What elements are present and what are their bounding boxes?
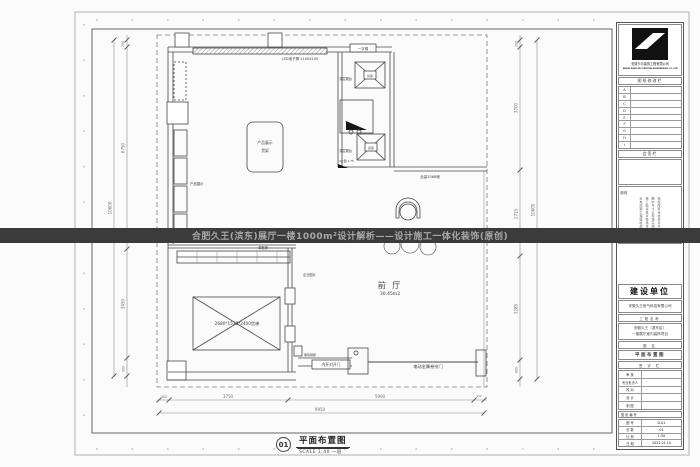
dim-left-1: 6750 <box>121 142 126 153</box>
drawing-title-marker: 01 平面布置图 SCALE 1:40 一层 <box>276 434 350 455</box>
island-label-2: 货架 <box>261 148 269 153</box>
revision-header: 图纸修改栏 <box>618 77 682 85</box>
revision-row-letter: H <box>619 135 631 141</box>
stand-label-1: 双层展台 <box>339 76 352 81</box>
revision-row-empty <box>631 101 681 107</box>
col-label-2: 货架 <box>368 145 374 150</box>
meta-label: 图 号 <box>619 420 642 426</box>
dim-right-2: 2715 <box>514 208 519 219</box>
dim-bottom-2: 5900 <box>375 394 386 399</box>
shelf-label: 产品展示 <box>190 181 204 186</box>
dim-bottom-3: 150 <box>476 394 482 398</box>
cad-floorplan-sheet: { "watermark": { "text": "合肥久王(滨东)展厅一楼10… <box>0 0 700 467</box>
plan-labels: LED电子屏 1100X100 一字梯 产品展示 产品展示 货架 双层展台 双层… <box>190 46 443 370</box>
room-area-label: 30.45m2 <box>380 291 400 297</box>
sign-row-empty <box>642 379 681 386</box>
dimension-labels: 200 6750 3450 300 10600 200 3700 2715 32… <box>108 41 536 412</box>
revision-row-letter: B <box>619 94 631 100</box>
revision-row-empty <box>631 94 681 100</box>
revision-row-letter: D <box>619 108 631 114</box>
sheet-meta-table: 图 号D-01 页 数01 比 例1:50 日 期2022.01.10 <box>618 419 682 447</box>
dim-right-0: 200 <box>515 41 519 47</box>
sign-row-empty <box>642 402 681 409</box>
led-label: LED电子屏 1100X100 <box>282 56 318 61</box>
drawing-scale: SCALE 1:40 一层 <box>296 448 350 455</box>
watermark-band: 合肥久王(滨东)展厅一楼1000m²设计解析——设计施工一体化装饰(原创) <box>0 228 700 243</box>
sign-row-label: 设 计 <box>619 394 642 401</box>
drawing-name-label: 图 名 <box>618 341 682 349</box>
revision-table: A B C D E F G H I <box>618 86 682 149</box>
revision-row-empty <box>631 108 681 114</box>
col-label-1: 货架 <box>367 73 373 78</box>
notes-header: 说明 <box>620 191 627 196</box>
sign-empty-box <box>618 159 682 185</box>
revision-row-letter: F <box>619 121 631 127</box>
dim-bottom-total: 9950 <box>315 407 326 412</box>
revision-row-empty <box>631 142 681 148</box>
dim-right-1: 3700 <box>514 102 519 113</box>
boundary-dashed <box>157 35 487 387</box>
top-door-label: 一字梯 <box>358 46 369 51</box>
sign-row-empty <box>642 371 681 378</box>
meta-label: 日 期 <box>619 440 642 446</box>
drawing-title: 平面布置图 <box>296 434 350 448</box>
dim-right-4: 600 <box>515 367 519 373</box>
column <box>175 33 189 47</box>
rolldoor-label: 电动金属卷帘门 <box>413 363 442 370</box>
client-name: 安徽久王电气科技有限公司 <box>618 300 682 313</box>
project-name: 安徽久王（滨东区） 一楼展厅室内装饰项目 <box>618 323 682 340</box>
project-label: 工程名称 <box>618 314 682 322</box>
sign-header: 会签栏 <box>618 150 682 158</box>
revision-row-empty <box>631 115 681 121</box>
revision-row-letter: C <box>619 101 631 107</box>
glass-label: 玻璃隔断 <box>304 352 316 357</box>
signature-column-header: 签 字 栏 <box>618 361 682 369</box>
sheet-number-header: 图纸编号 <box>618 411 682 418</box>
plan-geometry <box>157 33 487 387</box>
signature-table: 审 核 专业负责人 校 对 设 计 制 图 <box>618 370 682 410</box>
company-logo-icon <box>632 28 668 60</box>
revision-row-letter: I <box>619 142 631 148</box>
dim-left-0: 200 <box>121 41 125 47</box>
sign-row-label: 校 对 <box>619 387 642 394</box>
sign-row-empty <box>642 387 681 394</box>
title-block-logo-section: 安徽卡尔装饰工程有限公司 ANHUI KAER DECORATION ENGIN… <box>618 24 682 76</box>
dimension-lines <box>112 35 540 416</box>
meta-value: D-01 <box>642 420 681 426</box>
drawing-number-circle: 01 <box>276 437 291 452</box>
meta-label: 比 例 <box>619 434 642 440</box>
dim-right-total: 10600 <box>531 203 536 216</box>
stand-label-2: 双层展台 <box>339 148 352 153</box>
dim-right-3: 3285 <box>514 303 519 314</box>
sign-row-label: 制 图 <box>619 402 642 409</box>
column <box>268 33 282 47</box>
dim-left-3: 300 <box>122 366 126 372</box>
revision-row-letter: A <box>619 87 631 93</box>
revision-row-letter: E <box>619 115 631 121</box>
design-company-cn: 安徽卡尔装饰工程有限公司 <box>631 62 669 67</box>
stair-label: 单跑梯 <box>258 245 268 250</box>
meta-label: 页 数 <box>619 427 642 433</box>
island-label-1: 产品展示 <box>257 140 272 145</box>
dim-bottom-0: 300 <box>161 395 167 399</box>
client-header: 建设单位 <box>618 284 682 299</box>
revision-row-empty <box>631 135 681 141</box>
meta-value: 01 <box>642 427 681 433</box>
meta-value: 2022.01.10 <box>642 440 681 446</box>
project-name-line2: 一楼展厅室内装饰项目 <box>632 332 668 338</box>
reception-chair <box>384 198 436 255</box>
revision-row-empty <box>631 128 681 134</box>
sign-row-label: 审 核 <box>619 371 642 378</box>
drawing-name-value: 平面布置图 <box>618 350 682 360</box>
revision-row-empty <box>631 121 681 127</box>
dim-bottom-1: 3750 <box>223 394 234 399</box>
watermark-text: 合肥久王(滨东)展厅一楼1000m²设计解析——设计施工一体化装饰(原创) <box>192 229 508 242</box>
revision-row-letter: G <box>619 128 631 134</box>
dim-left-total: 10600 <box>108 201 113 214</box>
room-label: 前 厅 <box>378 280 403 290</box>
elevation-label: A立面 1:75 <box>339 159 354 163</box>
photos-label: 企业图片 <box>303 272 316 277</box>
sign-row-label: 专业负责人 <box>619 379 642 386</box>
door-label: 内开对开门 <box>322 362 341 367</box>
meta-value: 1:50 <box>642 434 681 440</box>
wall-label: 全高3368墙 <box>420 174 440 179</box>
design-company-en: ANHUI KAER DECORATION ENGINEERING CO.,LT… <box>623 67 678 69</box>
lift-label: 2680*1530*2400货梯 <box>215 320 260 327</box>
dim-left-2: 3450 <box>121 298 126 309</box>
led-screen-strip <box>193 48 327 54</box>
display-island <box>247 122 283 172</box>
sign-row-empty <box>642 394 681 401</box>
revision-row-empty <box>631 87 681 93</box>
title-block-spacer <box>618 245 682 284</box>
